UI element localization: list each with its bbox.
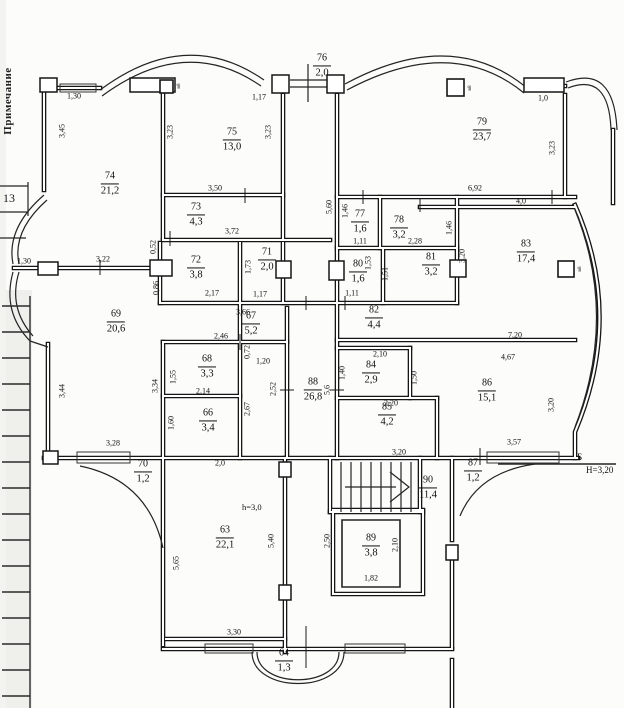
- dimension-label: 3,20: [458, 249, 467, 263]
- room-label-81: 813,2: [422, 252, 440, 277]
- dimension-label: 3,30: [227, 628, 241, 637]
- room-label-74: 7421,2: [101, 171, 119, 196]
- room-label-71: 712,0: [258, 247, 276, 272]
- dimension-label: 2,20: [384, 399, 398, 408]
- room-label-89: 893,8: [362, 533, 380, 558]
- dimension-label: 3,22: [96, 255, 110, 264]
- room-label-79: 7923,7: [473, 117, 491, 142]
- dimension-label: 1,17: [252, 93, 266, 102]
- dimension-label: 0,52: [149, 240, 158, 254]
- room-label-63: 6322,1: [216, 525, 234, 550]
- room-label-77: 771,6: [351, 209, 369, 234]
- dimension-label: 2,14: [196, 387, 210, 396]
- dimension-label: 2,10: [391, 538, 400, 552]
- margin-note-vertical: Примечание: [2, 61, 14, 141]
- dimension-label: 3,45: [58, 124, 67, 138]
- dimension-label: 1,53: [364, 256, 373, 270]
- dimension-label: 0,72: [243, 345, 252, 359]
- dimension-label: 1,55: [169, 370, 178, 384]
- vent-shaft-label: в8: [577, 266, 583, 271]
- dimension-label: 2,46: [214, 332, 228, 341]
- room-label-86: 8615,1: [478, 378, 496, 403]
- dimension-label: 3,23: [166, 125, 175, 139]
- sheet-fragment-number: 13: [3, 191, 15, 206]
- dimension-label: 3,23: [548, 141, 557, 155]
- room-label-73: 734,3: [187, 202, 205, 227]
- dimension-label: 1,46: [341, 204, 350, 218]
- dimension-label: 3,20: [547, 398, 556, 412]
- dimension-label: 1,20: [256, 357, 270, 366]
- dimension-label: 1,0: [538, 94, 548, 103]
- room-label-84: 842,9: [362, 360, 380, 385]
- room-label-76: 762,0: [313, 53, 331, 78]
- dimension-label: 3,50: [208, 184, 222, 193]
- room-label-78: 783,2: [390, 215, 408, 240]
- dimension-label: 5,40: [267, 534, 276, 548]
- axis-height-label: Н=3,20: [586, 465, 613, 475]
- labels-layer: Примечание 13 Б Н=3,20 h=3,0 7421,27513,…: [0, 0, 624, 708]
- vent-shaft-label: в8: [176, 83, 182, 88]
- dimension-label: 1,30: [17, 257, 31, 266]
- dimension-label: 2,67: [243, 402, 252, 416]
- dimension-label: 5,65: [172, 556, 181, 570]
- room-label-82: 824,4: [365, 305, 383, 330]
- room-label-68: 683,3: [198, 354, 216, 379]
- room-label-72: 723,8: [187, 255, 205, 280]
- dimension-label: 1,11: [345, 289, 359, 298]
- dimension-label: 1,73: [244, 260, 253, 274]
- dimension-label: 2,17: [205, 289, 219, 298]
- dimension-label: 1,17: [253, 290, 267, 299]
- room-label-87: 871,2: [464, 458, 482, 483]
- dimension-label: 2,10: [373, 350, 387, 359]
- vent-shaft-label: в8: [467, 85, 473, 90]
- dimension-label: 3,66: [236, 308, 250, 317]
- dimension-label: 2,28: [408, 237, 422, 246]
- room-label-64: 641,3: [275, 648, 293, 673]
- room-label-70: 701,2: [134, 459, 152, 484]
- axis-letter-label: Б: [577, 452, 582, 462]
- room-label-75: 7513,0: [223, 127, 241, 152]
- room-label-83: 8317,4: [517, 239, 535, 264]
- dimension-label: 3,23: [264, 125, 273, 139]
- dimension-label: 3,57: [507, 438, 521, 447]
- dimension-label: 4,67: [501, 353, 515, 362]
- dimension-label: 5,60: [325, 200, 334, 214]
- dimension-label: 0,86: [152, 281, 161, 295]
- dimension-label: 3,20: [392, 448, 406, 457]
- dimension-label: 3,34: [151, 379, 160, 393]
- dimension-label: 1,40: [338, 366, 347, 380]
- floorplan-page: Примечание 13 Б Н=3,20 h=3,0 7421,27513,…: [0, 0, 624, 708]
- room-label-90: 9011,4: [419, 475, 437, 500]
- dimension-label: 1,50: [410, 371, 419, 385]
- room-label-88: 8826,8: [304, 377, 322, 402]
- dimension-label: 3,44: [58, 384, 67, 398]
- room-label-69: 6920,6: [107, 309, 125, 334]
- dimension-label: 1,11: [353, 237, 367, 246]
- dimension-label: 1,82: [364, 574, 378, 583]
- dimension-label: 3,28: [106, 439, 120, 448]
- dimension-label: 2,0: [215, 459, 225, 468]
- dimension-label: 1,46: [445, 221, 454, 235]
- dimension-label: 4,0: [516, 197, 526, 206]
- dimension-label: 7,20: [508, 331, 522, 340]
- dimension-label: 5,6: [323, 385, 332, 395]
- room-label-66: 663,4: [199, 408, 217, 433]
- dimension-label: 6,92: [468, 184, 482, 193]
- dimension-label: 1,30: [67, 92, 81, 101]
- dimension-label: 1,51: [381, 267, 390, 281]
- dimension-label: 2,50: [323, 534, 332, 548]
- dimension-label: 3,72: [225, 227, 239, 236]
- dimension-label: 2,52: [269, 382, 278, 396]
- ceiling-height-label: h=3,0: [242, 502, 262, 512]
- dimension-label: 1,60: [167, 416, 176, 430]
